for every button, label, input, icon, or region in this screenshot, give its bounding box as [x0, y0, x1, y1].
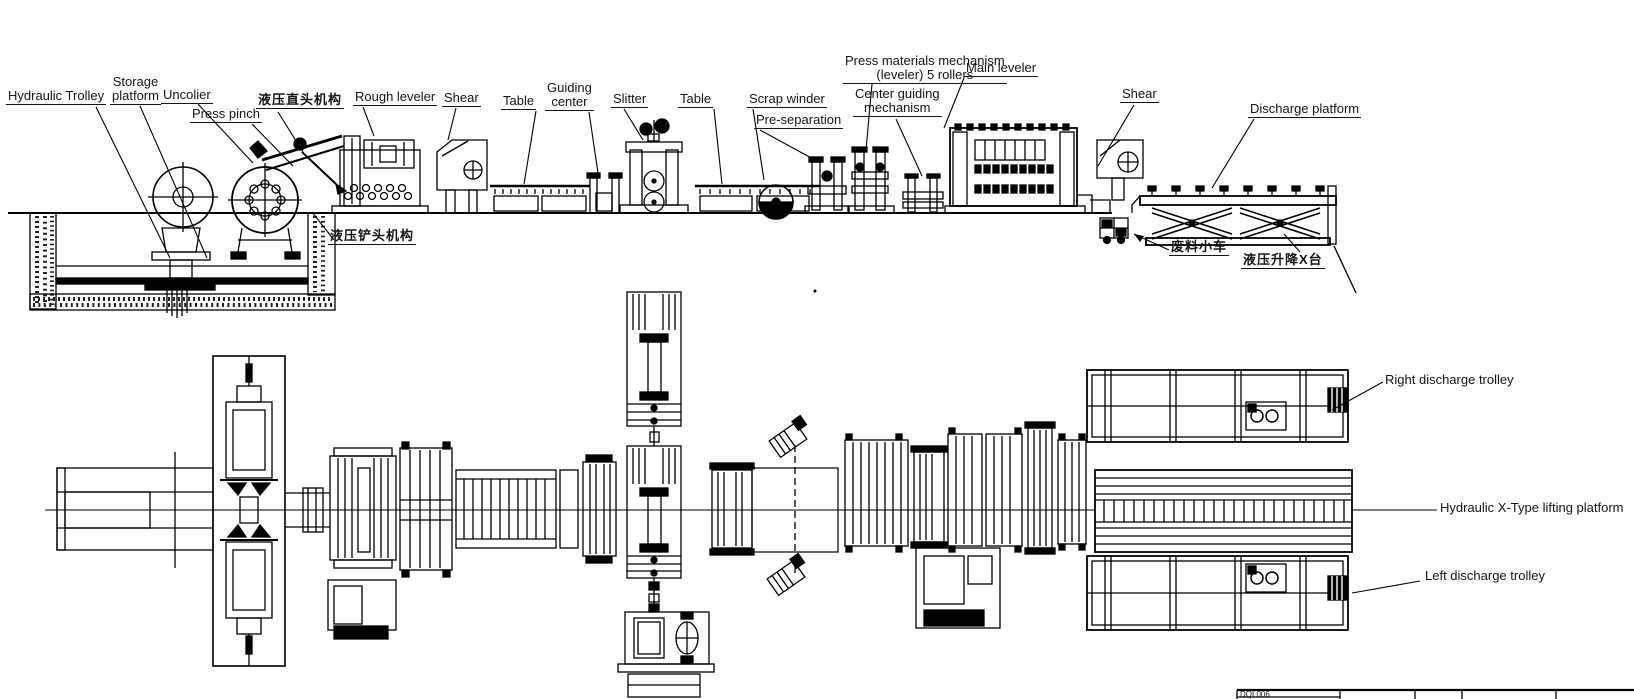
label-slitter: Slitter [611, 92, 648, 108]
main-leveler [945, 124, 1092, 213]
left-discharge-trolley [1087, 556, 1348, 630]
label-hydraulic-straight-head: 液压直头机构 [256, 93, 344, 109]
label-left-discharge-trolley: Left discharge trolley [1425, 569, 1545, 583]
lifting-platform-plan [1095, 470, 1352, 552]
titleblock-edge [1237, 690, 1634, 699]
label-storage-platform: Storage platform [110, 75, 161, 105]
press-pinch-plan [328, 448, 396, 639]
label-center-guiding: Center guiding mechanism [853, 87, 942, 117]
shear-plan [560, 455, 616, 563]
label-shear-2: Shear [1120, 87, 1159, 103]
guiding-center-unit [587, 173, 622, 213]
right-discharge-trolley [1087, 370, 1348, 442]
slitter-assembly-plan [618, 292, 714, 697]
main-leveler-plan [1058, 434, 1086, 550]
pre-separation-plan [911, 446, 947, 548]
label-scrap-winder: Scrap winder [747, 92, 827, 108]
table-2-plan [845, 434, 908, 552]
table-1 [490, 186, 590, 211]
stray-dot [814, 290, 817, 293]
label-lifting-platform-cn: 液压升降X台 [1241, 253, 1325, 269]
press-materials-unit [848, 147, 894, 213]
uncoiler-plan [213, 356, 330, 666]
plan-view [45, 292, 1437, 697]
label-guiding-center: Guiding center [545, 81, 594, 111]
label-press-pinch: Press pinch [190, 107, 262, 123]
label-right-discharge-trolley: Right discharge trolley [1385, 373, 1514, 387]
label-table-2: Table [678, 92, 713, 108]
label-hydraulic-x-lifting-platform: Hydraulic X-Type lifting platform [1440, 501, 1624, 515]
center-guiding-plan [1025, 422, 1055, 554]
storage-platform-roller [148, 162, 218, 232]
rough-leveler [332, 136, 428, 213]
label-table-1: Table [501, 94, 536, 110]
scrap-winder [759, 185, 793, 219]
rough-leveler-plan [400, 442, 452, 577]
label-rough-leveler: Rough leveler [353, 90, 437, 106]
roller-table-plan [456, 470, 556, 548]
scrap-trolley [1100, 218, 1128, 244]
label-pre-separation: Pre-separation [754, 113, 843, 129]
label-shear-1: Shear [442, 91, 481, 107]
label-scrap-trolley-cn: 废料小车 [1169, 240, 1229, 256]
label-hydraulic-trolley: Hydraulic Trolley [6, 89, 106, 105]
separator-frame-plan [710, 416, 838, 596]
pre-separation-unit [805, 157, 849, 213]
machine-line-layout-drawing: Hydraulic Trolley Storage platform Uncol… [0, 0, 1634, 699]
discharge-platform-scissor-lift [1132, 186, 1356, 293]
shear-1 [437, 140, 487, 213]
uncoiler [228, 163, 302, 259]
table-2 [695, 186, 820, 211]
label-uncolier: Uncolier [161, 88, 213, 104]
label-hydraulic-shovel-head: 液压铲头机构 [328, 229, 416, 245]
center-guiding-unit [903, 174, 943, 212]
label-main-leveler: Main leveler [964, 61, 1038, 77]
slitter-machine [620, 119, 688, 213]
label-discharge-platform: Discharge platform [1248, 102, 1361, 118]
titleblock-code: DQL006 [1240, 691, 1270, 699]
